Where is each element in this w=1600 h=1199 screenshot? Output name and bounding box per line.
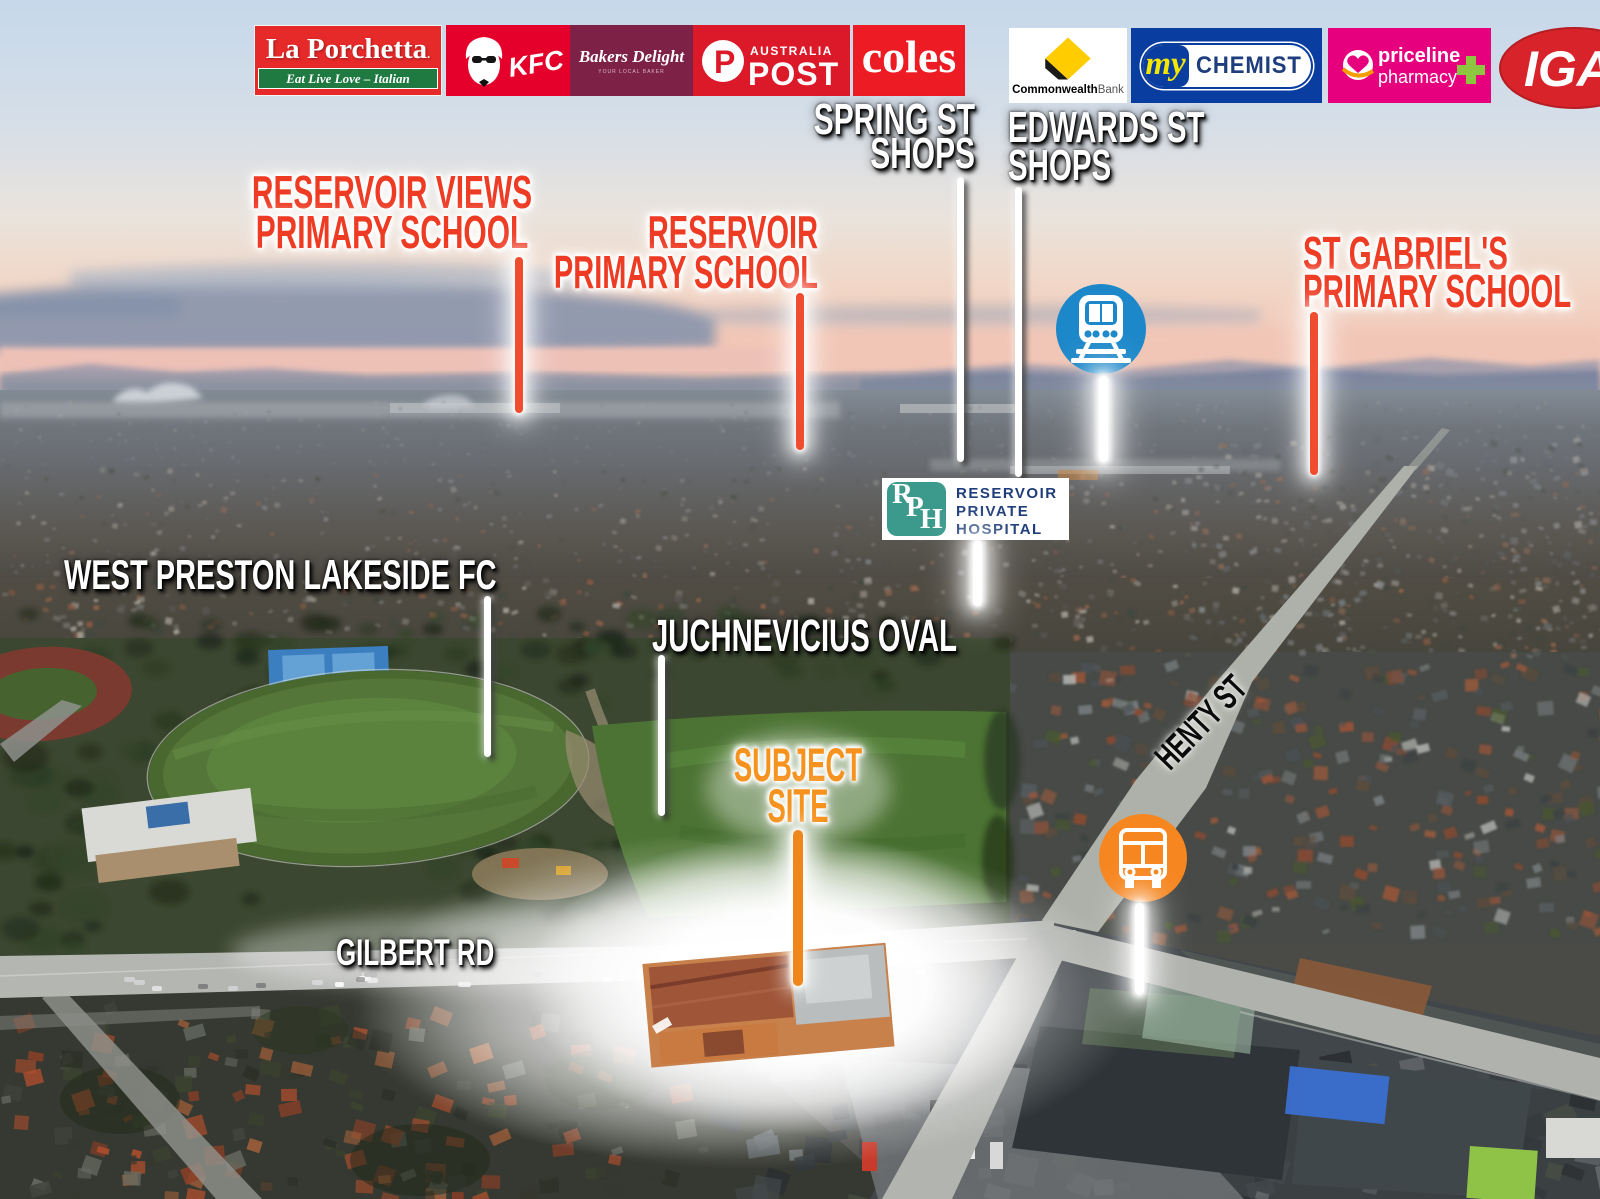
svg-text:pharmacy: pharmacy xyxy=(1378,67,1457,87)
svg-text:P: P xyxy=(714,44,735,80)
svg-text:POST: POST xyxy=(748,56,839,92)
svg-text:KFC: KFC xyxy=(506,45,566,83)
svg-text:IGA: IGA xyxy=(1524,41,1600,97)
svg-text:priceline: priceline xyxy=(1378,45,1460,67)
